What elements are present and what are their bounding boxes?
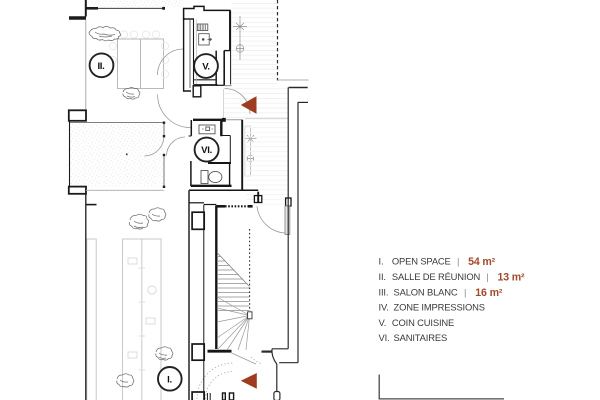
svg-text:VI.: VI. — [379, 332, 390, 343]
svg-text:V.: V. — [202, 62, 210, 73]
svg-text:SALON BLANC: SALON BLANC — [394, 286, 458, 297]
svg-text:SALLE DE RÉUNION: SALLE DE RÉUNION — [392, 271, 480, 282]
svg-text:16 m²: 16 m² — [475, 287, 503, 299]
svg-text:13 m²: 13 m² — [498, 271, 526, 283]
svg-text:I.: I. — [167, 375, 172, 386]
svg-text:54 m²: 54 m² — [468, 256, 496, 268]
svg-text:|: | — [457, 256, 459, 267]
svg-text:I.: I. — [379, 256, 384, 267]
svg-text:III.: III. — [379, 286, 389, 297]
svg-text:OPEN SPACE: OPEN SPACE — [392, 256, 451, 267]
svg-text:SANITAIRES: SANITAIRES — [394, 332, 448, 343]
svg-text:COIN CUISINE: COIN CUISINE — [392, 317, 454, 328]
svg-text:V.: V. — [379, 317, 387, 328]
svg-text:|: | — [464, 286, 466, 297]
svg-text:ZONE IMPRESSIONS: ZONE IMPRESSIONS — [394, 302, 485, 313]
svg-text:II.: II. — [379, 271, 386, 282]
svg-text:IV.: IV. — [379, 302, 389, 313]
svg-text:|: | — [486, 271, 488, 282]
svg-text:VI.: VI. — [201, 145, 212, 156]
svg-text:II.: II. — [97, 61, 104, 72]
